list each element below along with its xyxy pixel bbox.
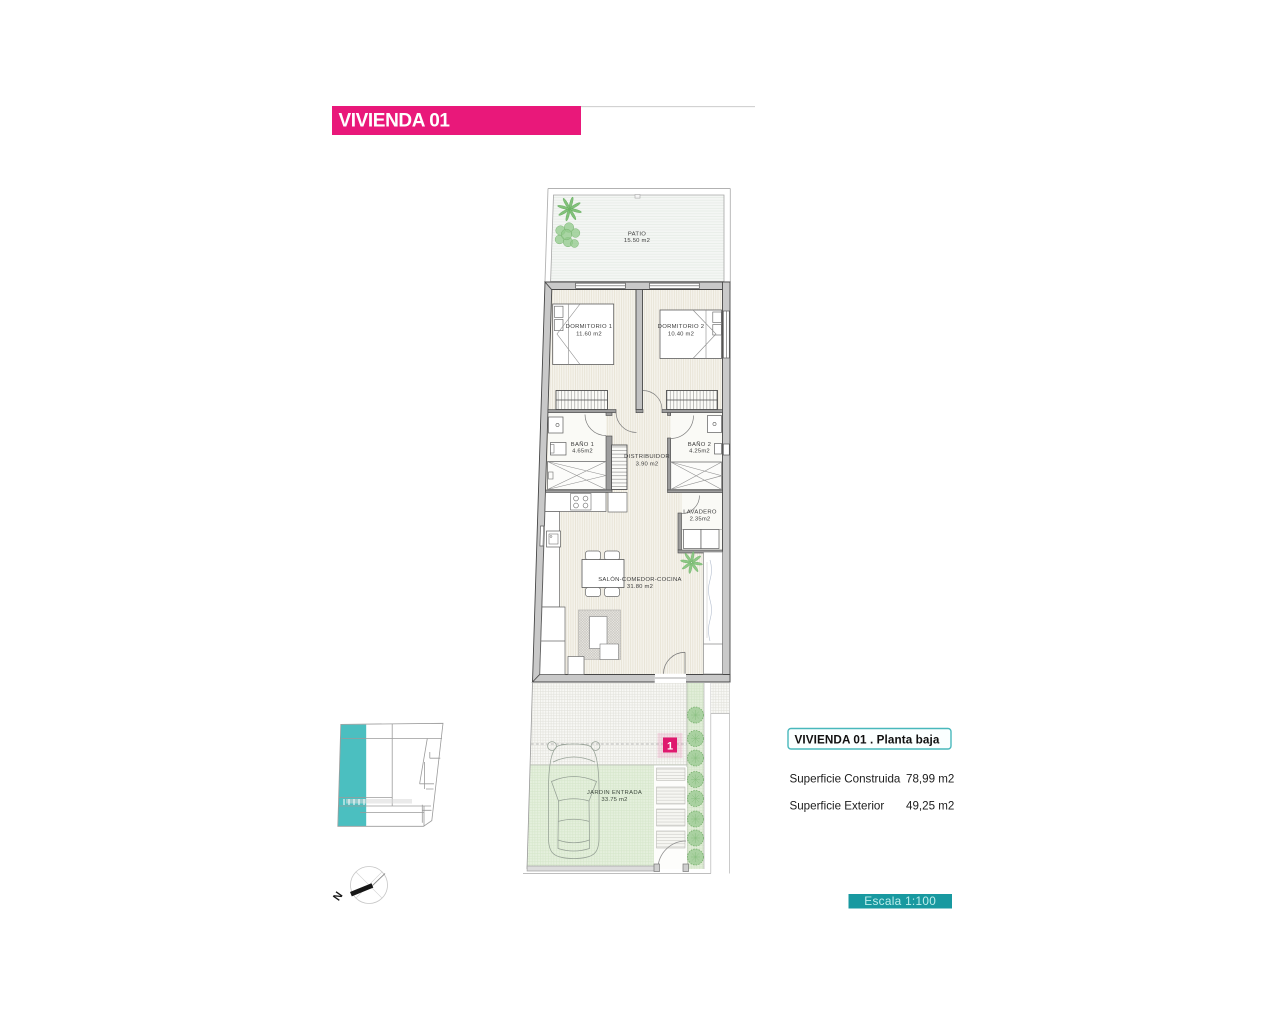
- svg-text:DORMITORIO 1: DORMITORIO 1: [566, 324, 613, 330]
- svg-text:Escala 1:100: Escala 1:100: [864, 894, 936, 908]
- svg-text:15.50 m2: 15.50 m2: [624, 238, 650, 244]
- svg-text:2.35m2: 2.35m2: [690, 516, 711, 522]
- svg-text:33.75 m2: 33.75 m2: [601, 797, 627, 803]
- svg-text:1: 1: [667, 741, 673, 753]
- svg-text:PATIO: PATIO: [628, 231, 646, 237]
- svg-text:4.25m2: 4.25m2: [689, 449, 710, 455]
- svg-text:BAÑO 1: BAÑO 1: [571, 441, 594, 448]
- svg-text:VIVIENDA 01 . Planta baja: VIVIENDA 01 . Planta baja: [795, 734, 940, 747]
- svg-text:78,99 m2: 78,99 m2: [906, 773, 954, 786]
- svg-text:3.90 m2: 3.90 m2: [636, 461, 659, 467]
- svg-text:BAÑO 2: BAÑO 2: [688, 441, 711, 448]
- svg-text:JARDIN ENTRADA: JARDIN ENTRADA: [587, 790, 642, 796]
- svg-text:49,25 m2: 49,25 m2: [906, 800, 954, 813]
- svg-text:4.65m2: 4.65m2: [572, 449, 593, 455]
- svg-text:VIVIENDA 01: VIVIENDA 01: [339, 111, 451, 132]
- svg-text:Superficie Exterior: Superficie Exterior: [790, 800, 885, 813]
- svg-text:SALÓN-COMEDOR-COCINA: SALÓN-COMEDOR-COCINA: [598, 576, 682, 583]
- svg-text:DORMITORIO 2: DORMITORIO 2: [658, 324, 705, 330]
- svg-text:11.60 m2: 11.60 m2: [576, 331, 602, 337]
- svg-text:LAVADERO: LAVADERO: [683, 509, 717, 515]
- svg-text:10.40 m2: 10.40 m2: [668, 331, 694, 337]
- svg-text:Superficie Construida: Superficie Construida: [790, 773, 901, 786]
- svg-text:DISTRIBUIDOR: DISTRIBUIDOR: [624, 454, 670, 460]
- svg-text:31.80 m2: 31.80 m2: [627, 584, 653, 590]
